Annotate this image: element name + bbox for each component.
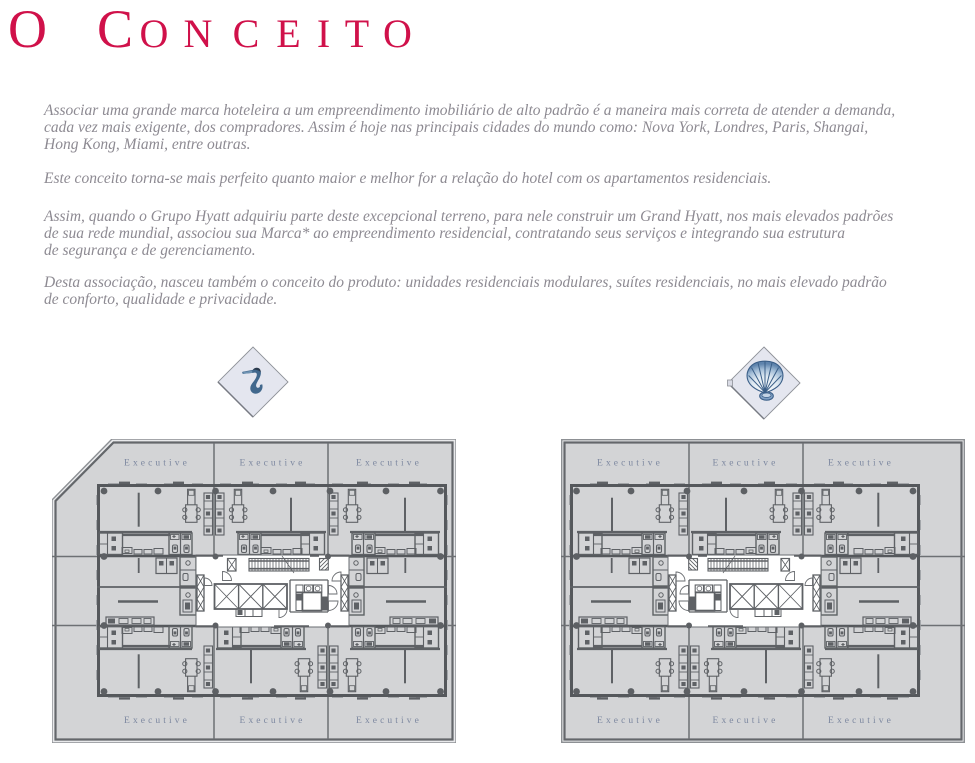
svg-text:Executive: Executive: [828, 459, 894, 469]
svg-text:E: E: [276, 11, 300, 56]
svg-text:N: N: [184, 11, 213, 56]
svg-text:C: C: [97, 0, 133, 59]
svg-text:Executive: Executive: [713, 459, 779, 469]
svg-text:Executive: Executive: [356, 716, 422, 726]
svg-text:Executive: Executive: [597, 459, 663, 469]
svg-text:Executive: Executive: [124, 459, 190, 469]
svg-text:Executive: Executive: [240, 459, 306, 469]
svg-text:Executive: Executive: [124, 716, 190, 726]
svg-text:Executive: Executive: [828, 716, 894, 726]
svg-text:Executive: Executive: [356, 459, 422, 469]
svg-text:O: O: [140, 11, 169, 56]
svg-text:I: I: [317, 11, 330, 56]
svg-text:Executive: Executive: [597, 716, 663, 726]
svg-text:O: O: [383, 11, 412, 56]
svg-text:C: C: [233, 11, 260, 56]
svg-text:O: O: [8, 0, 47, 59]
svg-text:Executive: Executive: [713, 716, 779, 726]
svg-text:T: T: [345, 11, 369, 56]
svg-text:Executive: Executive: [240, 716, 306, 726]
